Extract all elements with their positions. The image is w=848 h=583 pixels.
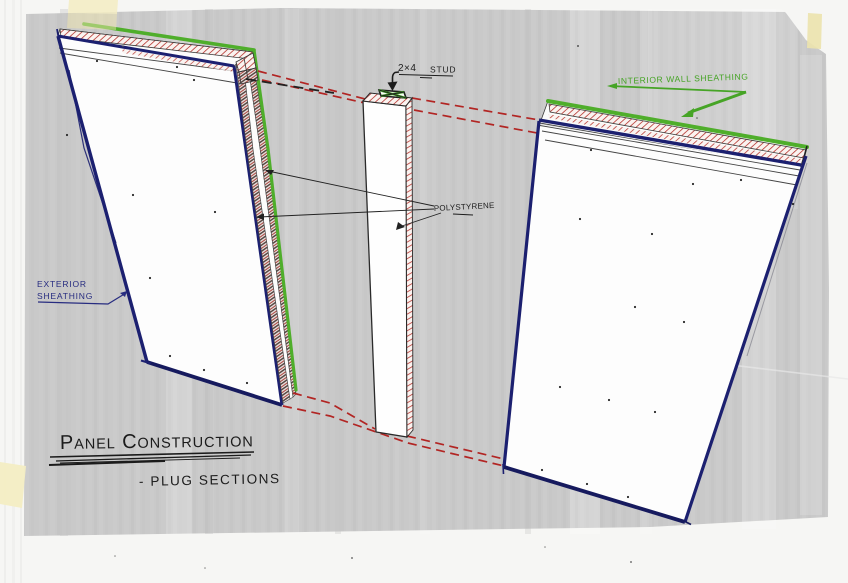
svg-text:2×4: 2×4 [398,63,416,74]
svg-text:SHEATHING: SHEATHING [37,291,93,301]
svg-text:EXTERIOR: EXTERIOR [37,279,87,289]
svg-text:- PLUG SECTIONS: - PLUG SECTIONS [139,471,281,489]
svg-text:STUD: STUD [430,65,456,75]
